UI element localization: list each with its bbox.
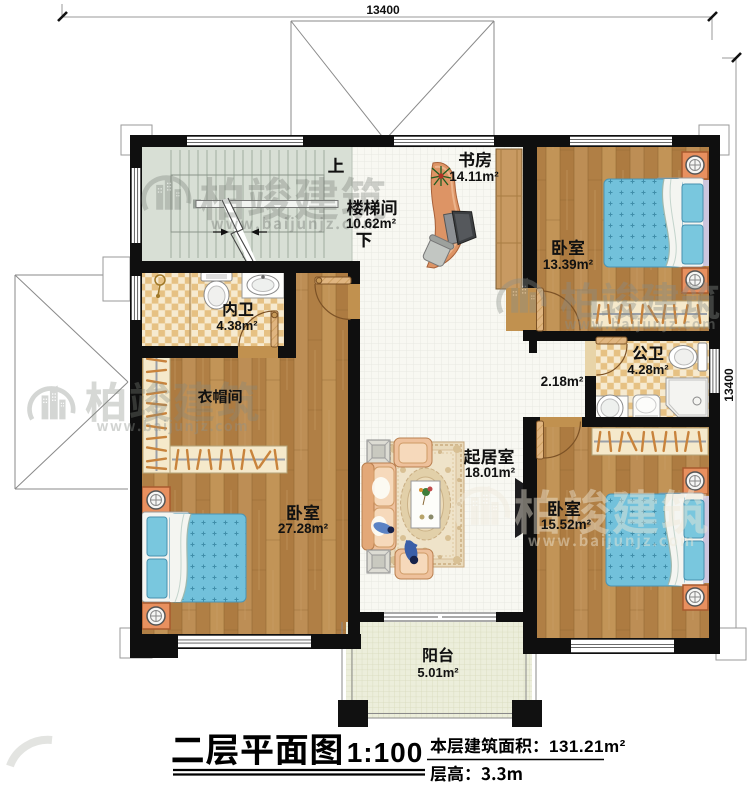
svg-text:15.52m²: 15.52m² xyxy=(541,517,592,532)
svg-text:4.38m²: 4.38m² xyxy=(216,318,258,333)
svg-text:13400: 13400 xyxy=(722,368,736,402)
svg-text:27.28m²: 27.28m² xyxy=(278,521,329,536)
svg-text:131.21m²: 131.21m² xyxy=(549,737,626,756)
svg-text:2.18m²: 2.18m² xyxy=(541,374,584,389)
svg-text:13400: 13400 xyxy=(366,3,400,17)
svg-text:10.62m²: 10.62m² xyxy=(346,216,397,231)
svg-text:13.39m²: 13.39m² xyxy=(543,257,594,272)
svg-text:1:100: 1:100 xyxy=(347,737,424,768)
svg-text:4.28m²: 4.28m² xyxy=(627,362,669,377)
svg-text:14.11m²: 14.11m² xyxy=(449,169,499,184)
svg-text:5.01m²: 5.01m² xyxy=(417,665,459,680)
svg-text:18.01m²: 18.01m² xyxy=(465,465,516,480)
